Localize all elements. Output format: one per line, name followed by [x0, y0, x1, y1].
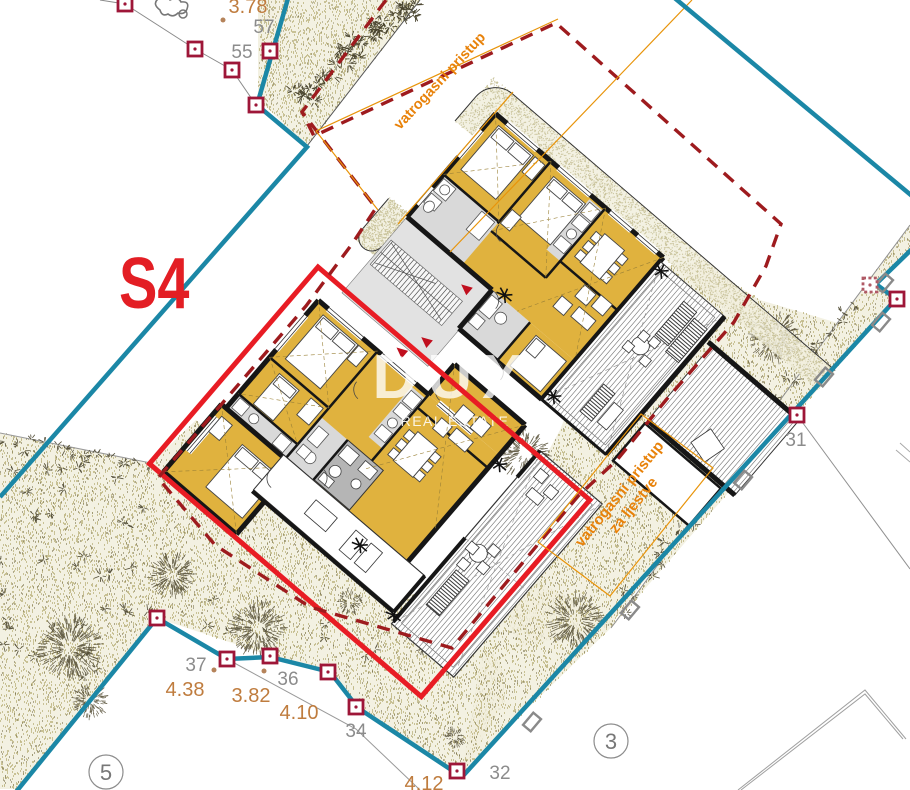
svg-text:55: 55 — [231, 42, 252, 63]
svg-text:S4: S4 — [119, 243, 189, 324]
svg-text:34: 34 — [345, 721, 367, 742]
svg-text:32: 32 — [489, 763, 510, 784]
svg-text:4.12: 4.12 — [405, 773, 444, 790]
svg-text:3: 3 — [605, 729, 617, 754]
svg-text:DUX: DUX — [373, 343, 534, 412]
svg-text:31: 31 — [785, 430, 806, 451]
svg-text:37: 37 — [185, 655, 206, 676]
svg-text:3.78: 3.78 — [229, 0, 268, 18]
svg-text:4.10: 4.10 — [280, 702, 319, 724]
svg-text:57: 57 — [253, 17, 274, 38]
svg-text:36: 36 — [277, 669, 298, 690]
svg-text:3.82: 3.82 — [232, 685, 271, 707]
svg-text:4.38: 4.38 — [166, 679, 205, 701]
svg-text:5: 5 — [100, 760, 112, 785]
